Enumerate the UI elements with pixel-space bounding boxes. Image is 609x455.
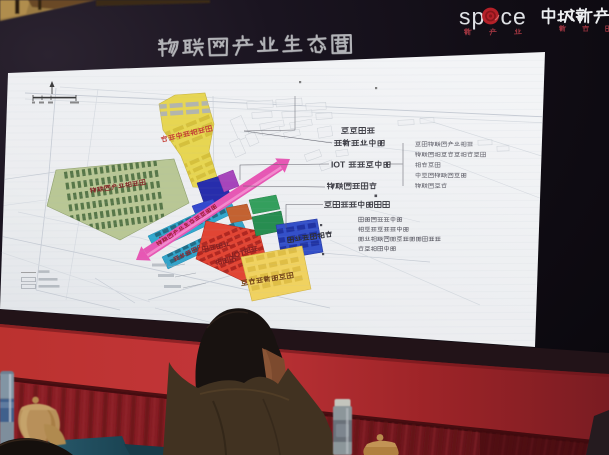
svg-text:sp: sp: [459, 4, 485, 30]
svg-text:ce: ce: [501, 4, 527, 30]
